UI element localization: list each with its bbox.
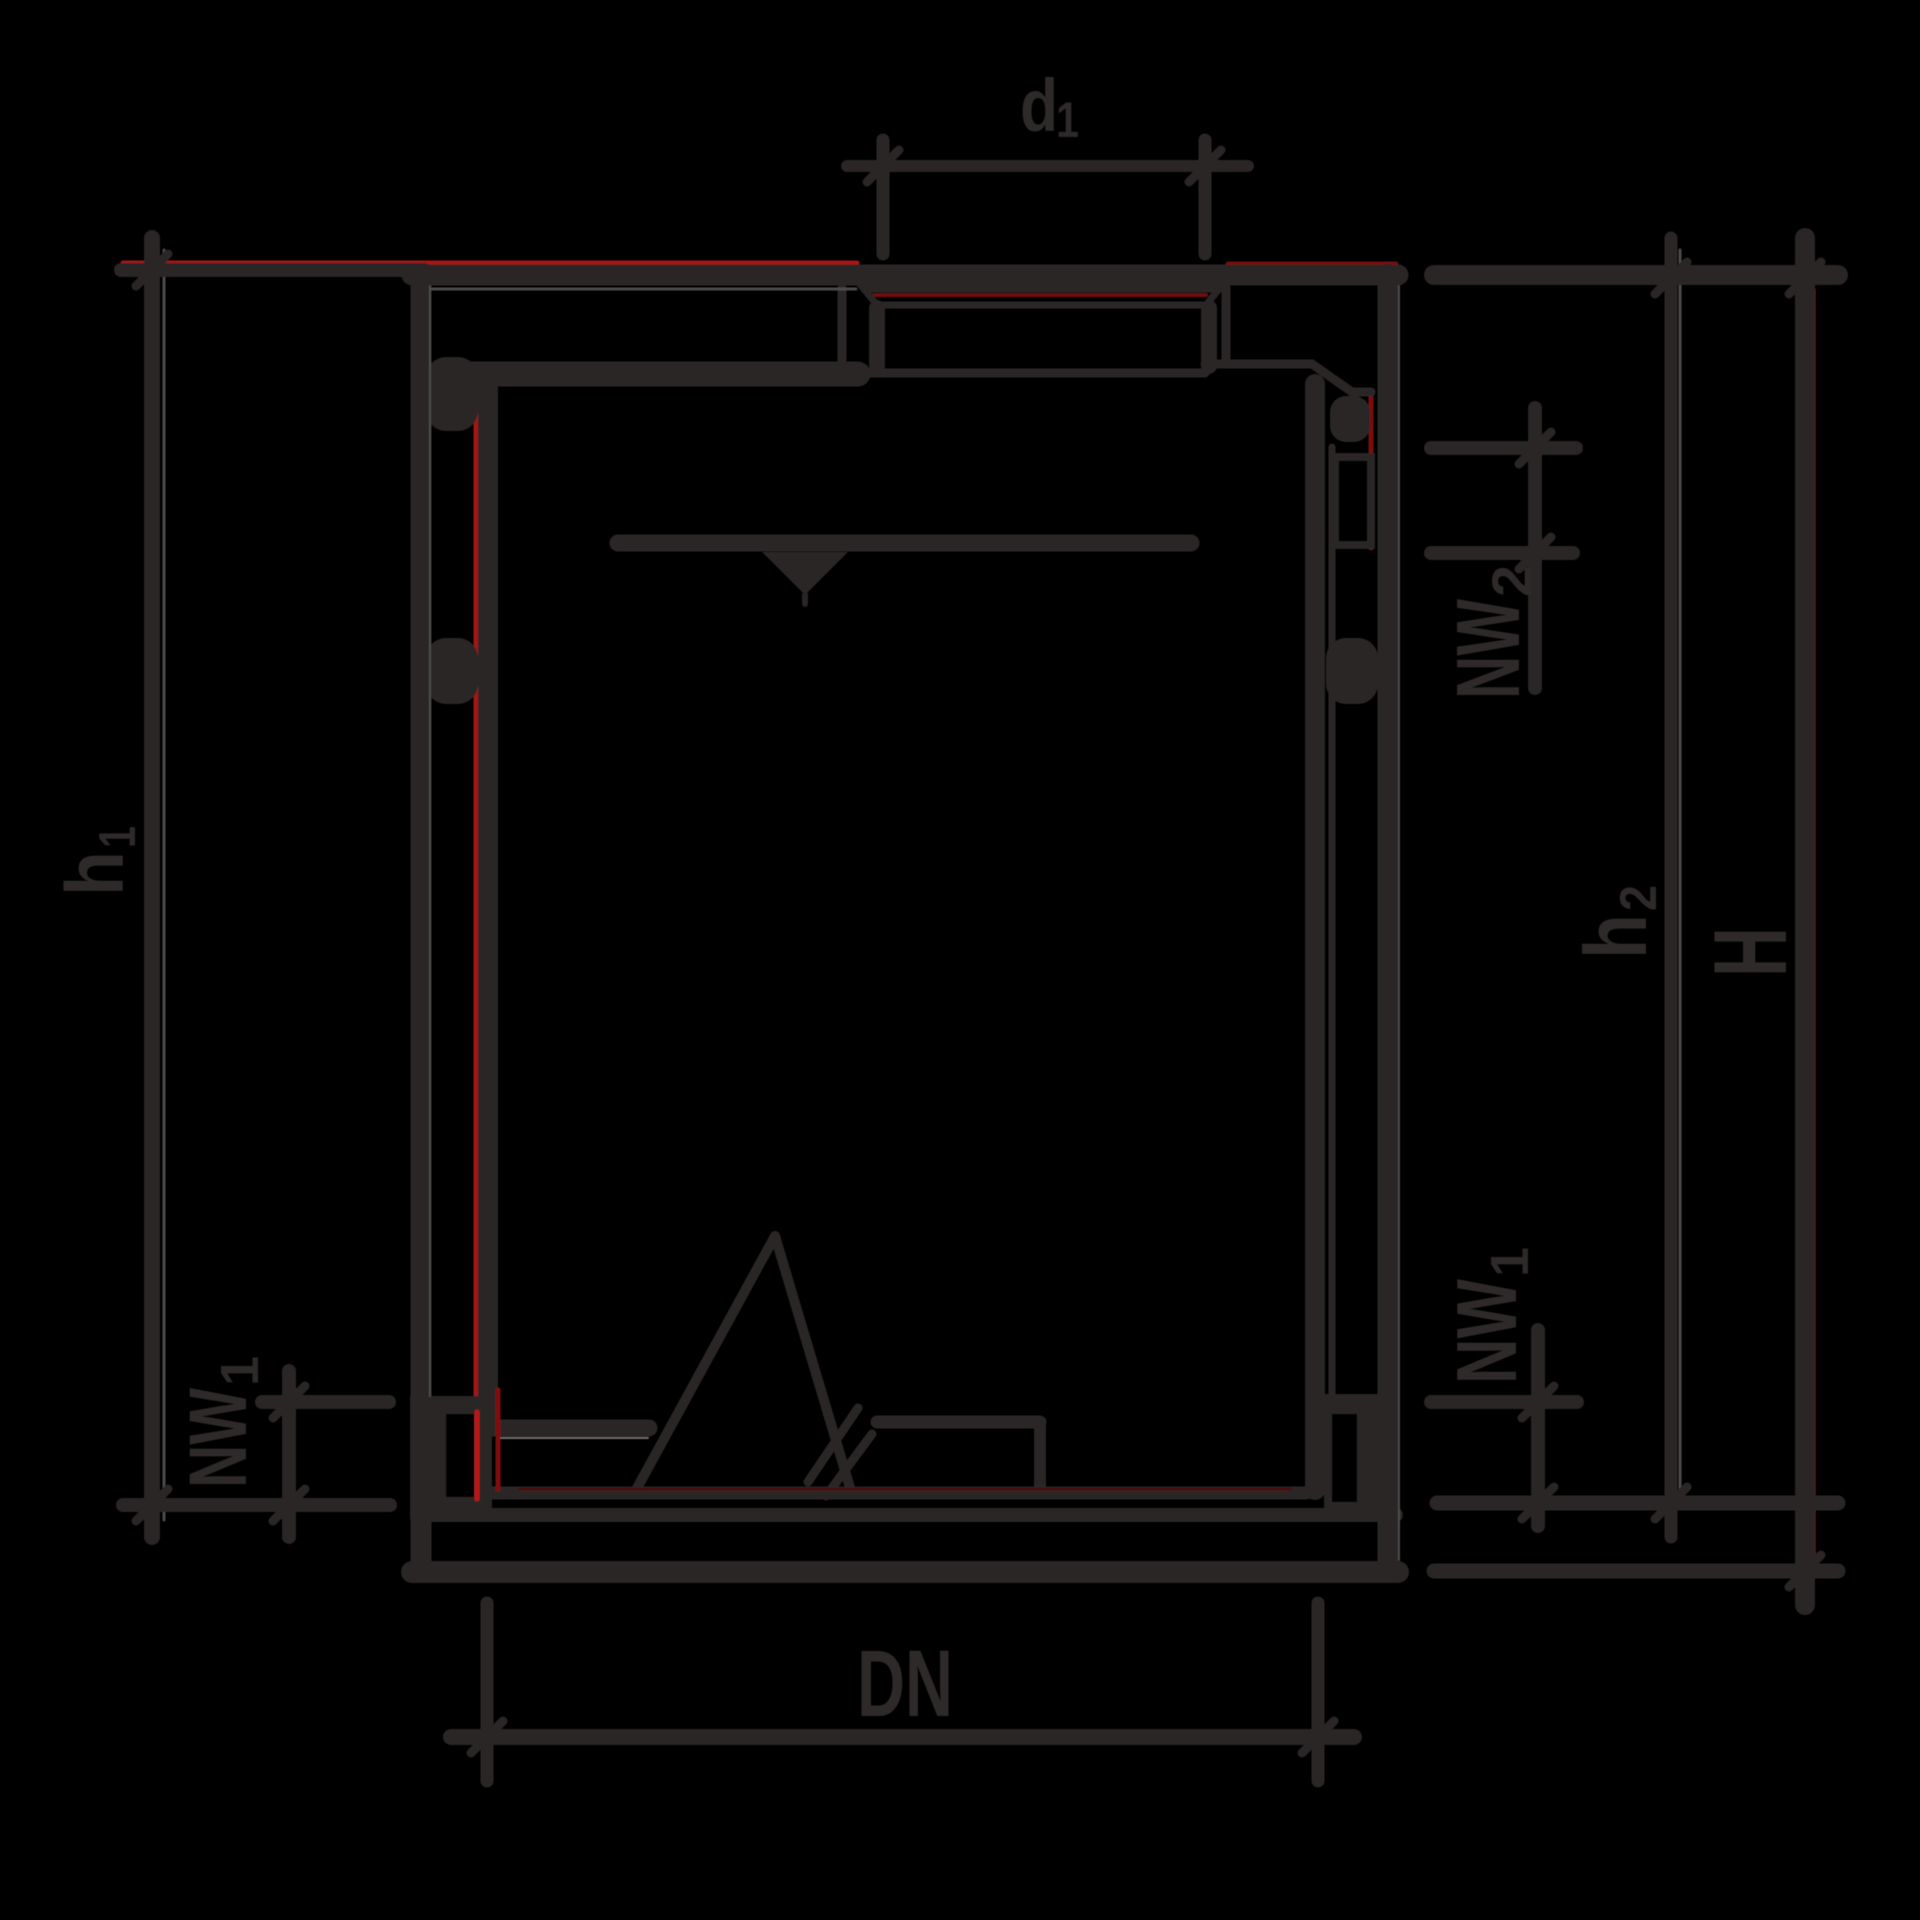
- svg-text:DN: DN: [857, 1631, 953, 1737]
- svg-text:h: h: [50, 851, 141, 896]
- svg-text:h: h: [1566, 914, 1665, 959]
- svg-text:NW: NW: [1439, 599, 1539, 699]
- svg-text:1: 1: [1480, 1247, 1540, 1277]
- svg-text:H: H: [1693, 927, 1809, 977]
- svg-text:2: 2: [1610, 885, 1668, 911]
- svg-text:d: d: [1020, 64, 1058, 147]
- svg-text:NW: NW: [173, 1388, 264, 1488]
- svg-text:NW: NW: [1440, 1278, 1535, 1384]
- svg-text:1: 1: [1056, 92, 1079, 148]
- svg-text:1: 1: [89, 826, 147, 848]
- svg-text:1: 1: [210, 1356, 270, 1386]
- svg-text:2: 2: [1480, 565, 1543, 597]
